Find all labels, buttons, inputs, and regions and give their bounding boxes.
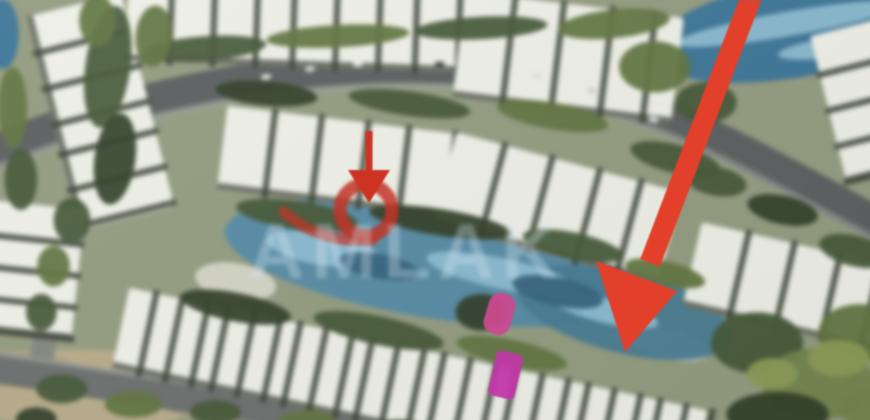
- pink-marker: [481, 290, 519, 338]
- large-location-arrow-icon: [596, 261, 677, 352]
- large-location-arrow-icon: [650, 0, 757, 263]
- aerial-photo-canvas: AMLAK: [0, 0, 870, 420]
- small-location-arrow-icon: [348, 170, 390, 203]
- magenta-marker: [487, 350, 524, 401]
- annotation-layer: [0, 0, 870, 420]
